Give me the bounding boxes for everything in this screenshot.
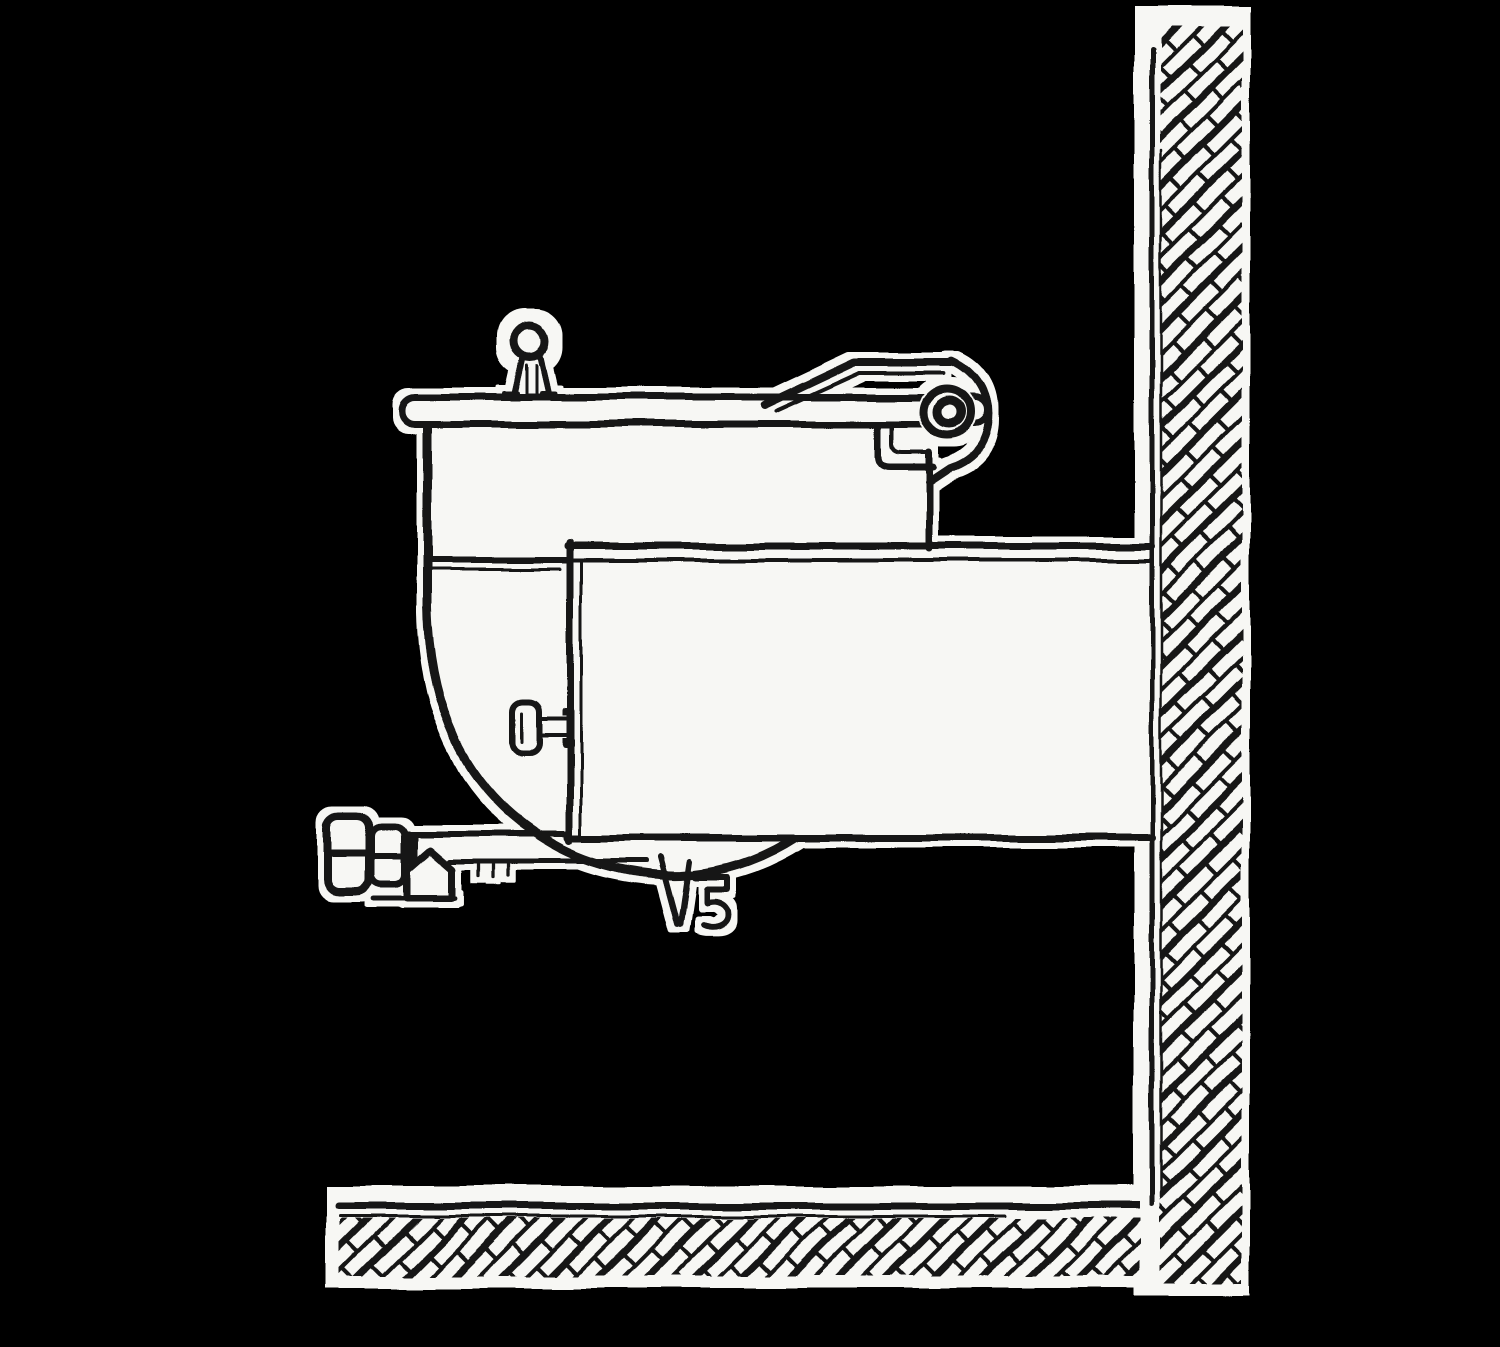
floor <box>332 1192 1164 1282</box>
support-housing <box>568 543 1152 841</box>
valve-handwheel <box>327 815 405 891</box>
wall <box>1140 12 1244 1290</box>
wall-hatching <box>1160 26 1242 1284</box>
housing-fill <box>568 543 1150 841</box>
floor-hatching <box>340 1218 1162 1276</box>
kettle-lid <box>401 397 987 424</box>
knob-foot-right <box>540 391 557 400</box>
knob-ball-ring <box>514 326 546 358</box>
knob-foot-left <box>503 391 520 400</box>
technical-drawing: Side-elevation ink line drawing of a wal… <box>0 0 1500 1347</box>
handle-grip <box>514 702 540 752</box>
hinge-pivot-pin-hole <box>942 405 956 419</box>
screenshot-canvas: Side-elevation ink line drawing of a wal… <box>0 0 1500 1347</box>
